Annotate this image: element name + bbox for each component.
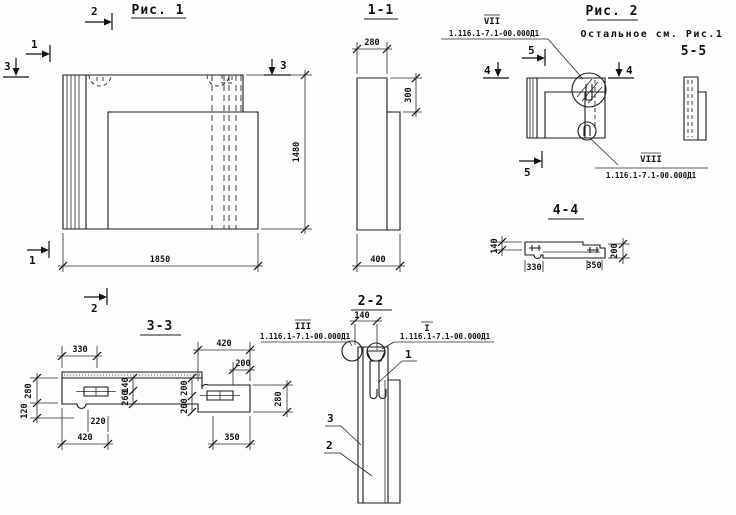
svg-text:1: 1 xyxy=(31,38,38,51)
fig2-left-ribs xyxy=(530,78,537,138)
fig2-marker-4-right: 4 xyxy=(608,62,634,78)
svg-text:5: 5 xyxy=(524,166,531,179)
svg-text:330: 330 xyxy=(72,345,87,355)
section-2-2: 2-2 140 III 1.116.1-7.1-00.000Д1 I 1.116… xyxy=(260,294,494,503)
svg-text:3: 3 xyxy=(327,412,334,425)
sec33-dim-left: 280 120 xyxy=(20,373,74,423)
svg-text:VII: VII xyxy=(484,17,500,27)
fig2-marker-5-top: 5 xyxy=(522,44,545,66)
fig1-hidden-lines xyxy=(89,75,241,229)
callout-vii: VII 1.116.1-7.1-00.000Д1 xyxy=(441,15,583,79)
detail-circle-iii xyxy=(342,341,362,361)
sec11-dim-280: 280 xyxy=(352,38,392,74)
svg-text:420: 420 xyxy=(77,433,92,443)
svg-text:4: 4 xyxy=(484,64,491,77)
sec44-dim-200: 200 xyxy=(608,238,630,264)
svg-text:2: 2 xyxy=(326,439,333,452)
detail-circle-i xyxy=(367,343,385,361)
fig1-title: Рис. 1 xyxy=(132,3,185,18)
svg-text:2: 2 xyxy=(91,5,98,18)
svg-text:260: 260 xyxy=(121,390,131,405)
sec33-insert-right xyxy=(200,391,240,400)
svg-text:280: 280 xyxy=(274,391,284,406)
sec22-dim-140: 140 xyxy=(350,311,382,350)
fig1-recess xyxy=(108,112,258,229)
sec33-dim-280-right: 280 xyxy=(253,380,293,417)
svg-text:VIII: VIII xyxy=(640,155,662,165)
sec11-dim-300: 300 xyxy=(390,73,422,117)
fig1-marker-3-left: 3 xyxy=(3,58,29,77)
svg-text:4: 4 xyxy=(626,64,633,77)
svg-text:280: 280 xyxy=(364,38,379,48)
sec33-dim-330: 330 xyxy=(57,345,102,368)
sec33-dim-200-top: 200 xyxy=(229,359,255,385)
sec22-leader-2: 2 xyxy=(324,439,372,476)
section-1-1: 1-1 280 300 400 xyxy=(352,3,422,272)
sec33-dim-inner-left: 140 260 xyxy=(121,374,137,408)
svg-text:280: 280 xyxy=(24,383,34,398)
fig1-marker-1-left: 1 xyxy=(26,38,50,62)
fig1-marker-2-top: 2 xyxy=(85,5,112,30)
svg-text:200: 200 xyxy=(235,359,250,369)
sec55-title: 5-5 xyxy=(681,44,707,59)
svg-text:350: 350 xyxy=(586,261,601,271)
svg-text:1.116.1-7.1-00.000Д1: 1.116.1-7.1-00.000Д1 xyxy=(400,332,491,341)
fig2-title: Рис. 2 xyxy=(586,4,639,19)
section-4-4: 4-4 140 200 330 xyxy=(490,203,630,273)
fig1-marker-3-right: 3 xyxy=(264,59,291,75)
sec33-dim-350: 350 xyxy=(208,416,255,450)
drawing-sheet: Рис. 1 2 1 3 3 1 xyxy=(0,0,736,515)
svg-text:200: 200 xyxy=(610,243,620,258)
svg-text:300: 300 xyxy=(404,87,414,102)
section-3-3: 3-3 140 260 xyxy=(20,319,293,450)
fig1-marker-1-bottom: 1 xyxy=(27,241,49,267)
fig2-marker-5-bottom: 5 xyxy=(519,151,542,179)
sec44-dim-350: 350 xyxy=(586,260,602,271)
callout-viii: VIII 1.116.1-7.1-00.000Д1 xyxy=(591,139,708,180)
svg-text:400: 400 xyxy=(370,255,385,265)
svg-text:1: 1 xyxy=(405,348,412,361)
sec11-title: 1-1 xyxy=(368,3,394,18)
sec33-dim-inner-right: 200 200 xyxy=(180,374,196,416)
svg-text:2: 2 xyxy=(91,302,98,315)
svg-text:1480: 1480 xyxy=(292,142,302,162)
lifting-loop-left xyxy=(89,75,111,86)
sec44-dim-140: 140 xyxy=(490,236,522,256)
fig1-left-ribs xyxy=(67,75,86,229)
svg-text:1850: 1850 xyxy=(150,255,170,265)
svg-text:120: 120 xyxy=(20,403,30,418)
technical-drawing: Рис. 1 2 1 3 3 1 xyxy=(0,0,736,515)
sec55-view xyxy=(684,77,706,140)
svg-text:200: 200 xyxy=(180,380,190,395)
fig1-marker-2-bottom: 2 xyxy=(84,288,107,315)
svg-text:1: 1 xyxy=(29,254,36,267)
svg-text:III: III xyxy=(295,322,311,332)
sec33-body-outline xyxy=(62,378,250,412)
callout-iii: III 1.116.1-7.1-00.000Д1 xyxy=(260,320,352,346)
callout-i: I 1.116.1-7.1-00.000Д1 xyxy=(382,322,494,349)
sec33-dim-220: 220 xyxy=(88,410,108,432)
fig2-marker-4-left: 4 xyxy=(483,62,509,78)
sec11-dim-400: 400 xyxy=(352,234,405,272)
svg-text:140: 140 xyxy=(354,311,369,321)
svg-text:200: 200 xyxy=(180,398,190,413)
svg-text:3: 3 xyxy=(280,59,287,72)
sec11-outline xyxy=(357,78,400,230)
sec33-insert-left xyxy=(76,387,116,396)
fig1-dim-width: 1850 xyxy=(58,233,263,272)
fig2-note: Остальное см. Рис.1 xyxy=(581,29,724,40)
svg-text:330: 330 xyxy=(526,263,541,273)
svg-text:1.116.1-7.1-00.000Д1: 1.116.1-7.1-00.000Д1 xyxy=(260,332,351,341)
svg-text:420: 420 xyxy=(216,339,231,349)
fig2-view: Рис. 2 Остальное см. Рис.1 5-5 VII 1.116… xyxy=(441,4,723,180)
svg-text:1.116.1-7.1-00.000Д1: 1.116.1-7.1-00.000Д1 xyxy=(606,171,697,180)
sec44-dim-330: 330 xyxy=(525,260,543,273)
svg-text:3: 3 xyxy=(4,60,11,73)
svg-text:140: 140 xyxy=(490,238,500,253)
svg-text:350: 350 xyxy=(224,433,239,443)
fig1-view: Рис. 1 2 1 3 3 1 xyxy=(3,3,312,315)
svg-text:5: 5 xyxy=(528,44,535,57)
svg-text:220: 220 xyxy=(90,417,105,427)
sec44-title: 4-4 xyxy=(553,203,579,218)
sec22-title: 2-2 xyxy=(358,294,384,309)
lifting-loop-right xyxy=(207,75,229,86)
detail-viii xyxy=(578,122,596,140)
sec33-title: 3-3 xyxy=(147,319,173,334)
sec33-dim-420-bot: 420 xyxy=(57,408,113,450)
svg-text:1.116.1-7.1-00.000Д1: 1.116.1-7.1-00.000Д1 xyxy=(449,29,540,38)
fig1-dim-height: 1480 xyxy=(246,70,312,234)
